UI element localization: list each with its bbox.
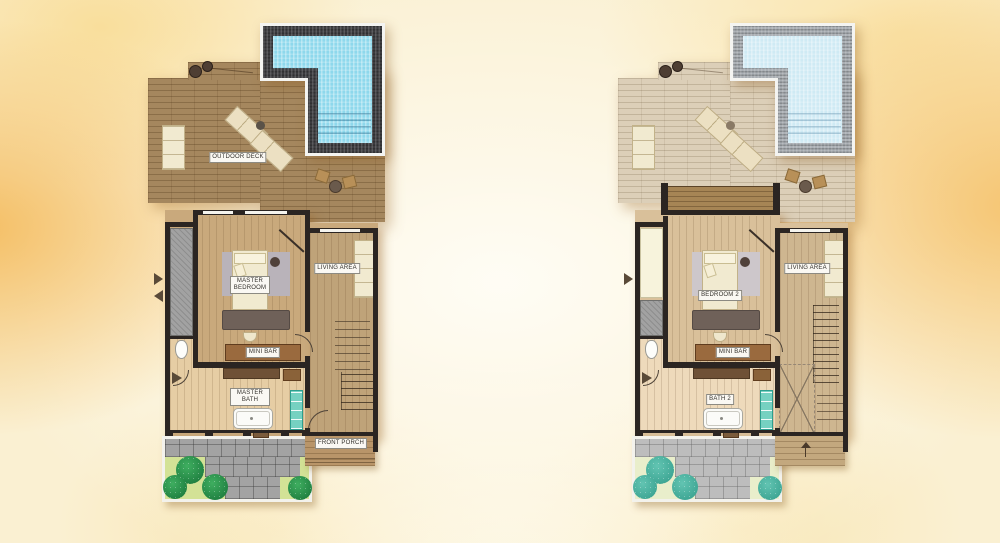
stairs-dashed	[817, 390, 843, 420]
bed-bench	[692, 310, 760, 330]
bath-label: BATH 2	[706, 394, 734, 405]
bedroom-label: BEDROOM 2	[698, 290, 742, 301]
wall	[165, 222, 170, 436]
wall	[373, 228, 378, 436]
planter-bench-strip	[667, 186, 777, 212]
closet-gray-section	[640, 300, 663, 336]
deck-sofa	[632, 125, 655, 170]
wall-post	[165, 430, 173, 436]
pool-steps	[318, 108, 371, 134]
toilet-icon	[175, 340, 188, 359]
bedside-table	[270, 257, 280, 267]
wall-post	[205, 430, 213, 436]
wall	[373, 436, 378, 452]
bed-bench	[222, 310, 290, 330]
bath-vanity	[693, 368, 750, 379]
wall	[305, 368, 310, 408]
bedroom-label: MASTER BEDROOM	[230, 276, 270, 294]
watercolor-background: OUTDOOR DECK MASTER BEDROOM LIVING AREA …	[0, 0, 1000, 543]
wall	[775, 368, 780, 408]
bathtub-drain	[720, 417, 723, 420]
courtyard-garden	[162, 436, 312, 502]
stairs-dashed	[335, 320, 370, 370]
open-to-below-void	[779, 364, 815, 434]
stone-pavers	[695, 477, 750, 499]
wall-post	[281, 430, 289, 436]
up-arrow-icon	[801, 442, 811, 448]
porch-step-line	[305, 462, 375, 463]
mini-bar-label: MINI BAR	[716, 347, 750, 358]
bathtub-inner	[236, 411, 270, 426]
planter-pot-icon	[202, 61, 213, 72]
deck-round-table	[329, 180, 342, 193]
wall-post	[751, 430, 759, 436]
planter-pot-icon	[189, 65, 202, 78]
deck-side-table	[726, 121, 735, 130]
bush-icon	[202, 474, 228, 500]
deck-round-table	[799, 180, 812, 193]
wardrobe-closet	[170, 228, 193, 336]
door-triangle	[154, 273, 163, 285]
bath-vanity	[223, 368, 280, 379]
front-porch	[775, 436, 845, 466]
window	[245, 211, 287, 214]
stone-pavers	[165, 439, 309, 457]
wall	[193, 216, 198, 368]
outdoor-deck-label: OUTDOOR DECK	[209, 152, 266, 163]
bush-icon	[672, 474, 698, 500]
deck-sofa	[162, 125, 185, 170]
bed-pillow	[704, 253, 736, 264]
staircase-up	[813, 305, 839, 383]
swimming-pool	[260, 23, 385, 156]
bed-pillow	[234, 253, 266, 264]
wall-post	[243, 430, 251, 436]
toilet-icon	[645, 340, 658, 359]
planter-pot-icon	[659, 65, 672, 78]
wall-post	[713, 430, 721, 436]
door-triangle	[624, 273, 633, 285]
front-porch-label: FRONT PORCH	[315, 438, 367, 449]
planter-pot-icon	[672, 61, 683, 72]
wall-post	[635, 430, 643, 436]
courtyard-garden	[632, 436, 782, 502]
wall-post	[675, 430, 683, 436]
stone-pavers	[635, 439, 779, 457]
bush-icon	[288, 476, 312, 500]
bush-icon	[758, 476, 782, 500]
wall	[843, 436, 848, 452]
wall	[170, 336, 193, 339]
window	[203, 211, 233, 214]
up-arrow-stem	[805, 448, 806, 457]
wall	[635, 222, 640, 436]
floor-plan-bedroom-2: BEDROOM 2 LIVING AREA MINI BAR BATH 2	[615, 18, 857, 530]
door-triangle	[154, 290, 163, 302]
teal-shelf-unit	[760, 390, 773, 430]
swimming-pool-faded	[730, 23, 855, 156]
bath-cabinet	[283, 369, 301, 381]
bathtub-drain	[250, 417, 253, 420]
wall	[663, 216, 668, 368]
wall	[305, 432, 378, 436]
bath-cabinet	[753, 369, 771, 381]
living-area-label: LIVING AREA	[784, 263, 830, 274]
wall	[663, 210, 780, 215]
window	[790, 229, 830, 232]
floor-plan-master-suite: OUTDOOR DECK MASTER BEDROOM LIVING AREA …	[145, 18, 387, 530]
bathtub-inner	[706, 411, 740, 426]
wall	[775, 432, 848, 436]
wardrobe-closet	[640, 228, 663, 298]
bush-icon	[633, 475, 657, 499]
window	[320, 229, 360, 232]
bush-icon	[163, 475, 187, 499]
bedside-table	[740, 257, 750, 267]
bath-label: MASTER BATH	[230, 388, 270, 406]
wall	[305, 228, 310, 332]
staircase	[341, 372, 373, 410]
wall	[640, 336, 663, 339]
wall	[775, 228, 780, 332]
wall	[843, 228, 848, 436]
pool-steps	[788, 108, 841, 134]
deck-side-table	[256, 121, 265, 130]
living-area-label: LIVING AREA	[314, 263, 360, 274]
wall	[663, 362, 775, 368]
teal-shelf-unit	[290, 390, 303, 430]
porch-step-line	[305, 458, 375, 459]
stone-pavers	[225, 477, 280, 499]
wall	[193, 362, 305, 368]
mini-bar-label: MINI BAR	[246, 347, 280, 358]
